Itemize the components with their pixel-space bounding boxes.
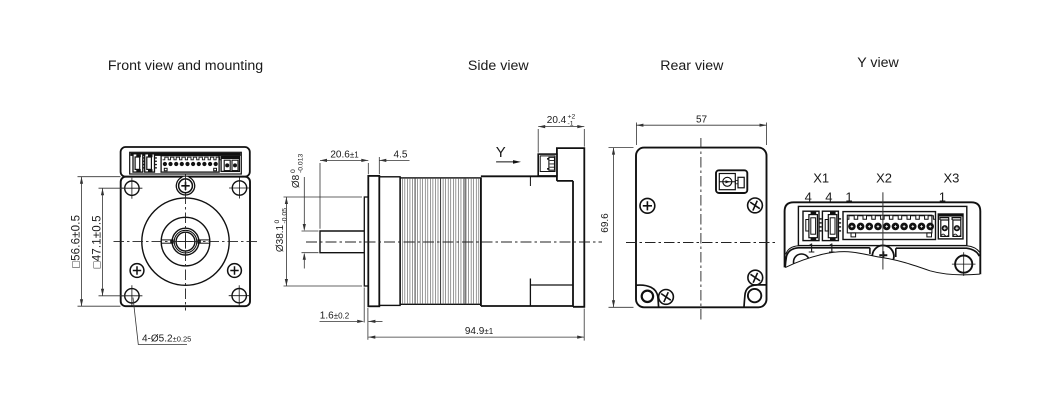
- svg-text:□47.1±0.5: □47.1±0.5: [92, 215, 104, 268]
- svg-text:Side view: Side view: [468, 58, 529, 74]
- svg-text:+2: +2: [568, 114, 576, 121]
- svg-text:Ø38.1: Ø38.1: [275, 224, 286, 252]
- svg-text:4.5: 4.5: [394, 150, 408, 161]
- svg-text:Rear view: Rear view: [660, 58, 724, 74]
- svg-text:69.6: 69.6: [600, 213, 611, 233]
- svg-text:X1: X1: [813, 171, 829, 186]
- svg-text:4: 4: [805, 190, 812, 205]
- svg-text:1: 1: [828, 240, 835, 255]
- svg-text:-1: -1: [568, 121, 574, 128]
- svg-text:20.6±1: 20.6±1: [330, 150, 359, 161]
- svg-text:0: 0: [290, 169, 297, 173]
- svg-text:□56.6±0.5: □56.6±0.5: [71, 215, 83, 268]
- svg-text:-0.013: -0.013: [298, 154, 305, 173]
- svg-text:1: 1: [808, 240, 815, 255]
- svg-text:0: 0: [274, 220, 281, 224]
- svg-text:Y view: Y view: [857, 55, 899, 71]
- svg-text:Front view and mounting: Front view and mounting: [108, 58, 263, 74]
- svg-text:4: 4: [825, 190, 832, 205]
- svg-text:20.4: 20.4: [547, 115, 567, 126]
- svg-text:57: 57: [696, 114, 708, 125]
- svg-text:X2: X2: [876, 171, 892, 186]
- svg-text:Y: Y: [496, 144, 506, 161]
- svg-text:Ø8: Ø8: [291, 174, 302, 188]
- svg-text:4-Ø5.2±0.25: 4-Ø5.2±0.25: [142, 334, 191, 345]
- svg-text:1: 1: [845, 190, 852, 205]
- svg-text:X3: X3: [943, 171, 959, 186]
- svg-text:-0.05: -0.05: [282, 208, 289, 224]
- svg-text:1: 1: [939, 190, 946, 205]
- svg-text:94.9±1: 94.9±1: [465, 326, 494, 337]
- svg-text:1.6±0.2: 1.6±0.2: [320, 311, 350, 322]
